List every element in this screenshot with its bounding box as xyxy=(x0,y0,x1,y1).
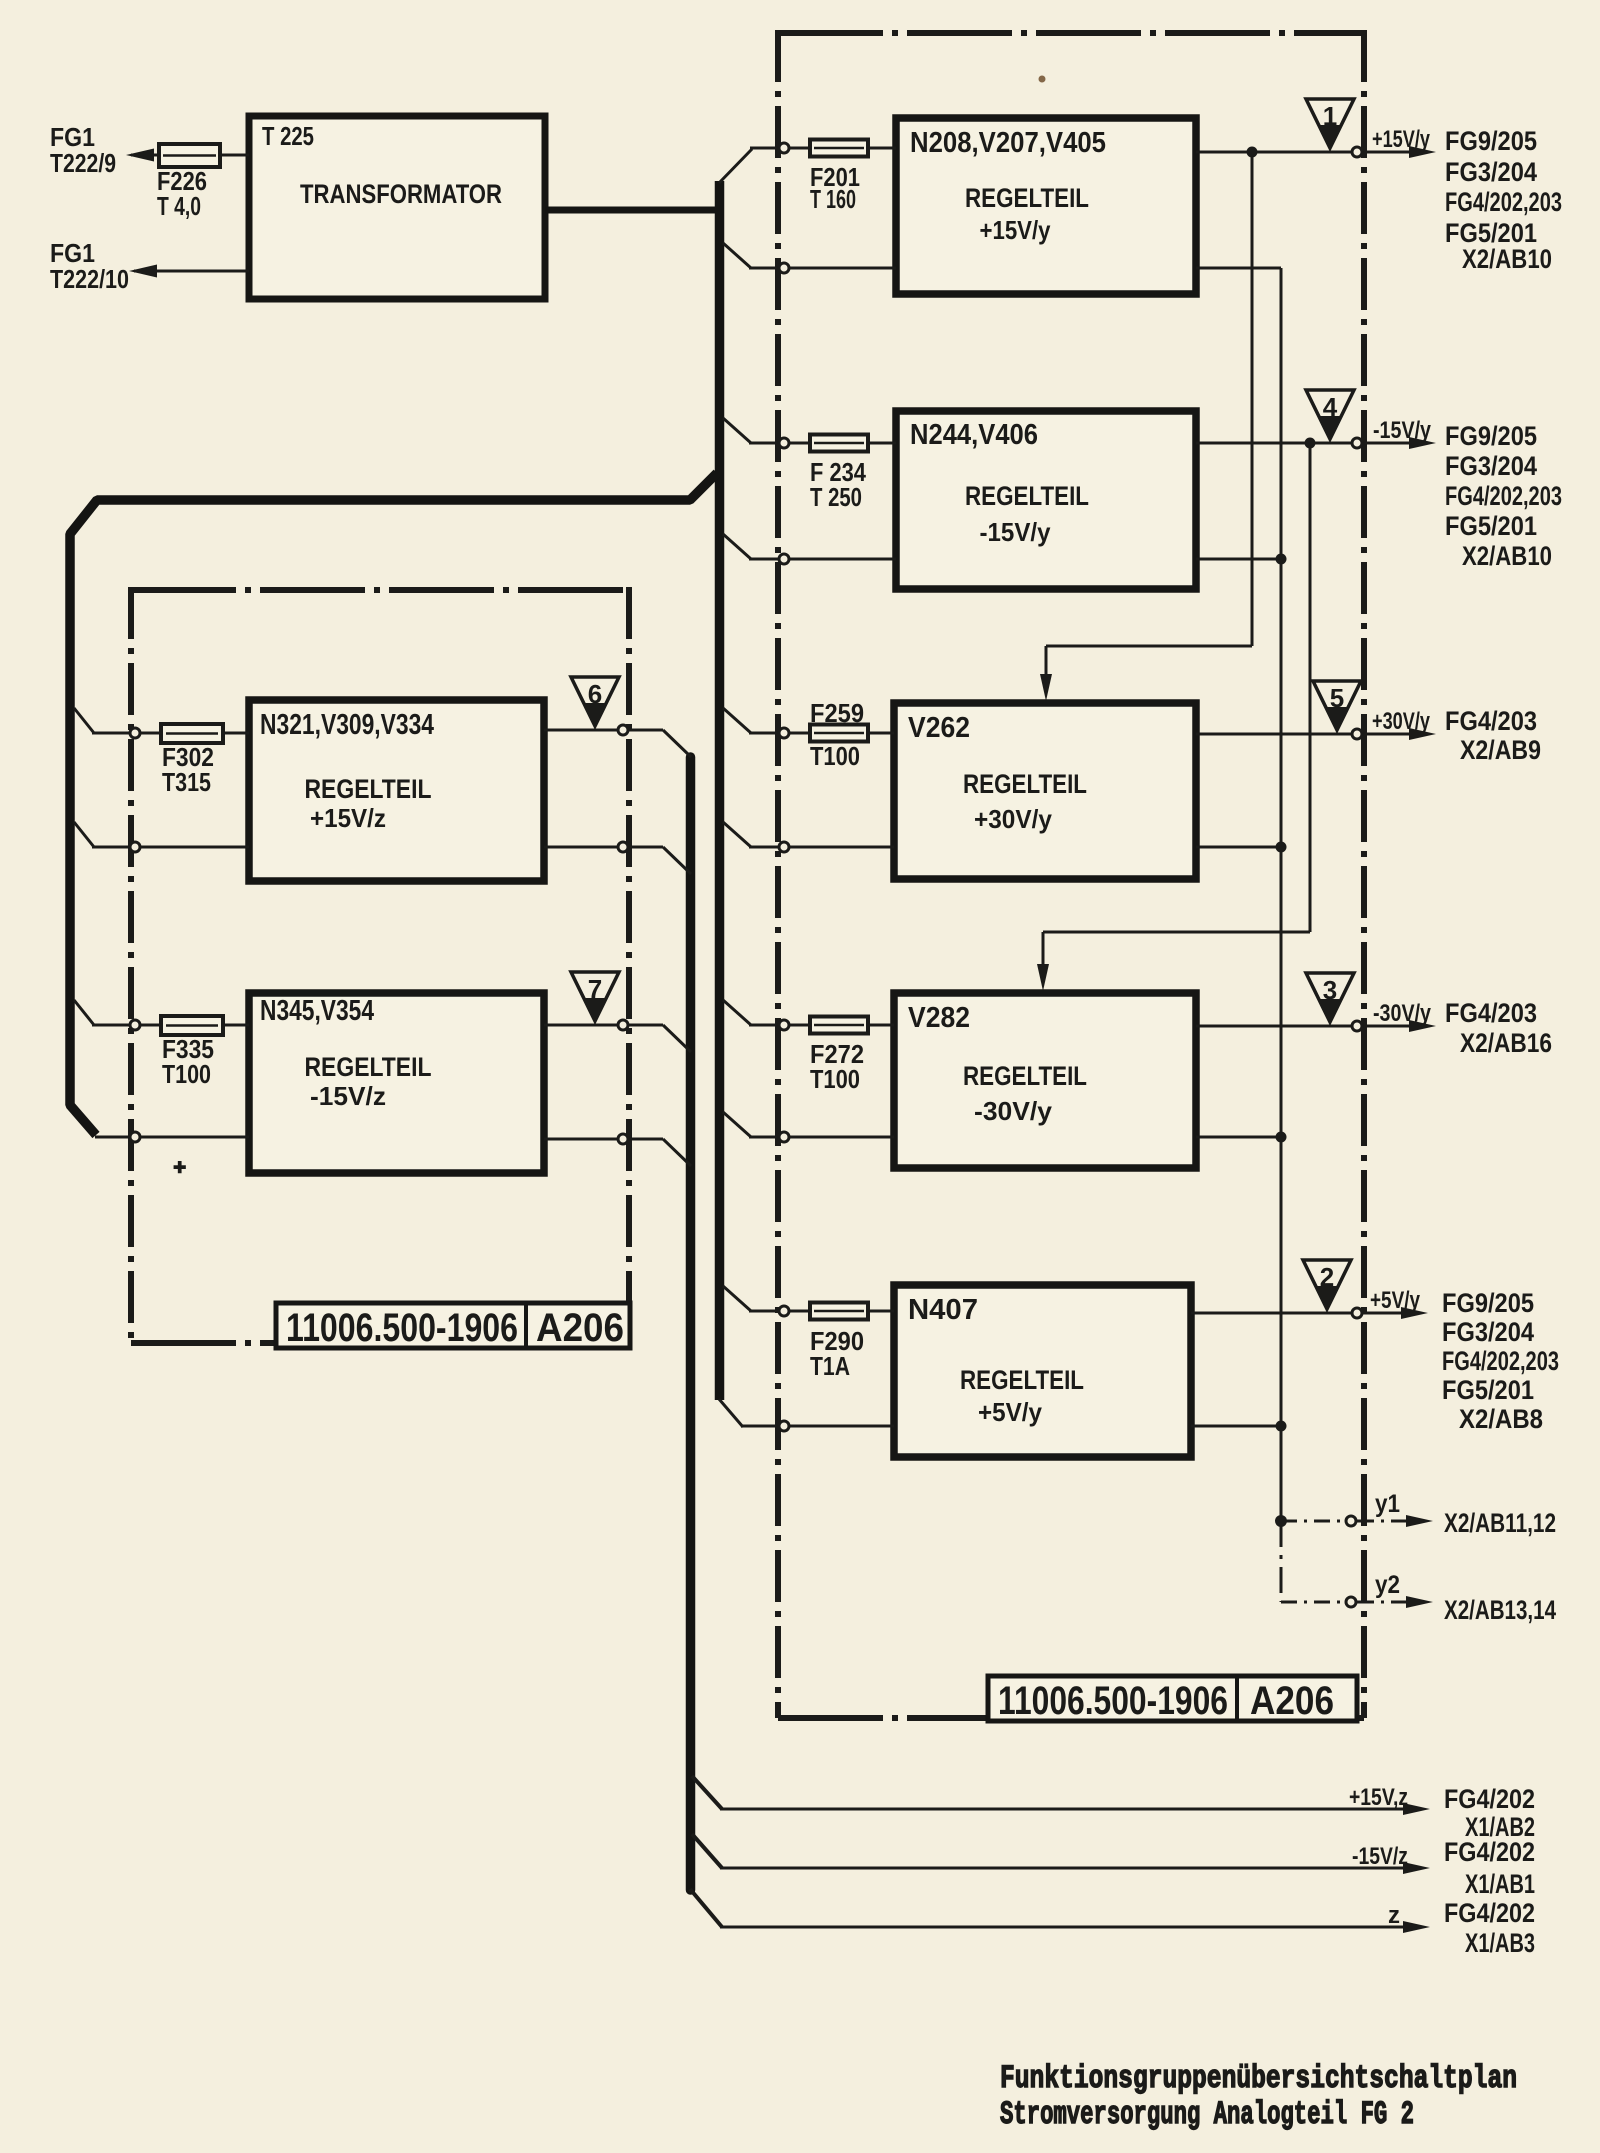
svg-text:X2/AB11,12: X2/AB11,12 xyxy=(1444,1508,1556,1538)
svg-text:FG4/203: FG4/203 xyxy=(1445,706,1537,736)
svg-text:X2/AB16: X2/AB16 xyxy=(1460,1028,1552,1058)
svg-text:-15V/y: -15V/y xyxy=(1373,417,1432,444)
svg-text:T100: T100 xyxy=(162,1059,211,1089)
svg-text:X2/AB13,14: X2/AB13,14 xyxy=(1444,1595,1556,1625)
svg-text:REGELTEIL: REGELTEIL xyxy=(965,481,1089,511)
svg-text:y2: y2 xyxy=(1375,1571,1400,1599)
svg-text:11006.500-1906: 11006.500-1906 xyxy=(286,1306,518,1350)
svg-text:FG4/202: FG4/202 xyxy=(1444,1837,1535,1867)
svg-text:+5V/y: +5V/y xyxy=(1370,1287,1421,1314)
svg-text:FG3/204: FG3/204 xyxy=(1445,451,1537,481)
svg-text:FG4/202: FG4/202 xyxy=(1444,1898,1535,1928)
svg-text:11006.500-1906: 11006.500-1906 xyxy=(998,1679,1228,1723)
svg-text:FG9/205: FG9/205 xyxy=(1442,1288,1534,1318)
svg-text:FG5/201: FG5/201 xyxy=(1445,511,1537,541)
svg-text:N321,V309,V334: N321,V309,V334 xyxy=(260,709,434,741)
svg-text:-15V/y: -15V/y xyxy=(980,517,1051,547)
svg-text:Funktionsgruppenübersichtschal: Funktionsgruppenübersichtschaltplan xyxy=(1000,2060,1517,2097)
svg-text:-30V/y: -30V/y xyxy=(974,1096,1053,1126)
svg-text:5: 5 xyxy=(1330,683,1344,713)
svg-text:1: 1 xyxy=(1323,101,1337,131)
svg-text:6: 6 xyxy=(588,679,602,709)
svg-text:+5V/y: +5V/y xyxy=(978,1397,1043,1427)
svg-text:FG4/202,203: FG4/202,203 xyxy=(1445,187,1562,217)
svg-text:T 225: T 225 xyxy=(262,121,314,151)
svg-text:-15V/z: -15V/z xyxy=(1352,1843,1408,1870)
svg-text:FG9/205: FG9/205 xyxy=(1445,421,1537,451)
svg-text:X1/AB3: X1/AB3 xyxy=(1465,1928,1535,1958)
svg-text:7: 7 xyxy=(588,974,602,1004)
svg-text:Stromversorgung Analogteil FG: Stromversorgung Analogteil FG 2 xyxy=(1000,2096,1414,2133)
svg-text:REGELTEIL: REGELTEIL xyxy=(965,183,1089,213)
svg-text:3: 3 xyxy=(1323,975,1337,1005)
svg-text:✚: ✚ xyxy=(173,1160,186,1177)
svg-text:+30V/y: +30V/y xyxy=(1372,708,1430,735)
svg-text:T 250: T 250 xyxy=(810,482,862,512)
svg-text:V262: V262 xyxy=(908,712,970,744)
svg-text:T222/9: T222/9 xyxy=(50,148,116,178)
svg-text:z: z xyxy=(1388,1902,1400,1929)
svg-text:-30V/y: -30V/y xyxy=(1373,1000,1432,1027)
svg-text:T1A: T1A xyxy=(810,1351,850,1381)
svg-text:FG3/204: FG3/204 xyxy=(1445,157,1537,187)
svg-text:T 160: T 160 xyxy=(810,184,856,214)
svg-text:y1: y1 xyxy=(1375,1490,1400,1518)
svg-text:REGELTEIL: REGELTEIL xyxy=(305,1052,432,1082)
svg-text:A206: A206 xyxy=(1250,1679,1334,1723)
svg-text:T100: T100 xyxy=(810,1064,860,1094)
svg-text:FG9/205: FG9/205 xyxy=(1445,126,1537,156)
svg-text:T222/10: T222/10 xyxy=(50,264,129,294)
svg-text:FG4/203: FG4/203 xyxy=(1445,998,1537,1028)
svg-text:N244,V406: N244,V406 xyxy=(910,419,1038,451)
svg-text:REGELTEIL: REGELTEIL xyxy=(963,769,1087,799)
svg-text:4: 4 xyxy=(1323,392,1338,422)
svg-text:X1/AB1: X1/AB1 xyxy=(1465,1869,1535,1899)
svg-text:T100: T100 xyxy=(810,741,860,771)
svg-text:FG5/201: FG5/201 xyxy=(1442,1375,1534,1405)
svg-text:+15V,z: +15V,z xyxy=(1349,1784,1408,1811)
svg-text:N208,V207,V405: N208,V207,V405 xyxy=(910,127,1106,159)
svg-text:N345,V354: N345,V354 xyxy=(260,995,374,1027)
svg-text:FG4/202,203: FG4/202,203 xyxy=(1442,1346,1559,1376)
svg-text:+15V/y: +15V/y xyxy=(1372,126,1430,153)
svg-text:+30V/y: +30V/y xyxy=(974,804,1052,834)
svg-text:X2/AB10: X2/AB10 xyxy=(1462,541,1552,571)
svg-text:FG3/204: FG3/204 xyxy=(1442,1317,1534,1347)
svg-text:+15V/z: +15V/z xyxy=(310,803,386,833)
svg-text:X2/AB9: X2/AB9 xyxy=(1460,735,1541,765)
svg-text:-15V/z: -15V/z xyxy=(310,1081,386,1111)
svg-text:FG4/202,203: FG4/202,203 xyxy=(1445,481,1562,511)
svg-text:V282: V282 xyxy=(908,1002,970,1034)
svg-text:2: 2 xyxy=(1320,1262,1334,1292)
svg-text:REGELTEIL: REGELTEIL xyxy=(305,774,432,804)
svg-text:A206: A206 xyxy=(536,1306,624,1350)
svg-text:TRANSFORMATOR: TRANSFORMATOR xyxy=(300,179,502,209)
svg-text:F259: F259 xyxy=(810,698,864,728)
svg-text:+15V/y: +15V/y xyxy=(980,215,1051,245)
svg-text:N407: N407 xyxy=(908,1294,978,1326)
svg-text:REGELTEIL: REGELTEIL xyxy=(960,1365,1084,1395)
svg-text:T 4,0: T 4,0 xyxy=(157,191,201,221)
svg-text:X2/AB10: X2/AB10 xyxy=(1462,244,1552,274)
svg-text:X2/AB8: X2/AB8 xyxy=(1459,1404,1543,1434)
svg-text:REGELTEIL: REGELTEIL xyxy=(963,1061,1087,1091)
svg-text:T315: T315 xyxy=(162,767,211,797)
svg-text:FG4/202: FG4/202 xyxy=(1444,1784,1535,1814)
